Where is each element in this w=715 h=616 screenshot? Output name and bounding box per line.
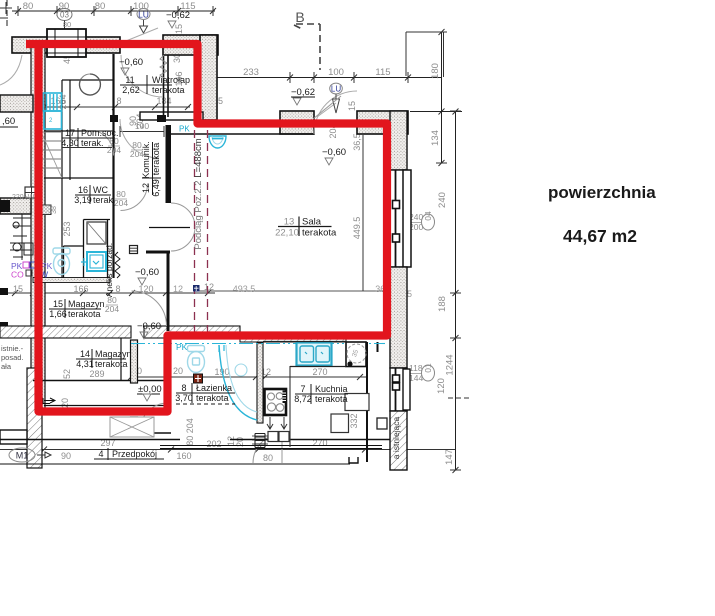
svg-text:20: 20 — [60, 398, 70, 408]
svg-text:14: 14 — [80, 349, 90, 359]
svg-text:80: 80 — [23, 1, 34, 12]
svg-text:a istniejąca: a istniejąca — [391, 416, 401, 459]
svg-text:449.5: 449.5 — [352, 217, 362, 240]
svg-text:B: B — [295, 9, 304, 25]
svg-text:100: 100 — [328, 67, 344, 78]
svg-text:180: 180 — [430, 63, 441, 79]
svg-text:LU: LU — [331, 85, 341, 94]
svg-text:289: 289 — [89, 369, 104, 379]
svg-text:Wiatrołap: Wiatrołap — [152, 75, 190, 85]
svg-text:15: 15 — [174, 24, 184, 34]
svg-text:terakota: terakota — [302, 228, 337, 239]
svg-text:posad.: posad. — [1, 353, 24, 362]
svg-text:Sala: Sala — [302, 217, 322, 228]
svg-text:1,66: 1,66 — [49, 309, 67, 319]
svg-text:8: 8 — [181, 383, 186, 393]
svg-text:−0,60: −0,60 — [119, 57, 143, 68]
svg-text:8: 8 — [115, 284, 120, 294]
svg-text:ała: ała — [1, 362, 12, 371]
svg-text:17: 17 — [65, 128, 75, 138]
svg-text:147: 147 — [444, 449, 455, 465]
svg-text:3,70: 3,70 — [175, 393, 193, 403]
svg-text:2,62: 2,62 — [122, 85, 140, 95]
svg-text:240: 240 — [437, 192, 448, 208]
svg-text:160: 160 — [176, 451, 191, 461]
svg-text:LU: LU — [138, 10, 149, 20]
svg-text:terakota: terakota — [95, 359, 128, 369]
svg-text:15: 15 — [347, 101, 357, 111]
svg-text:terakota: terakota — [68, 309, 101, 319]
svg-text:202: 202 — [206, 439, 221, 449]
svg-text:15: 15 — [53, 299, 63, 309]
svg-text:253: 253 — [62, 221, 72, 236]
svg-text:12: 12 — [226, 436, 236, 446]
svg-text:44,67 m2: 44,67 m2 — [563, 226, 637, 246]
svg-text:204: 204 — [105, 304, 119, 314]
svg-text:±0,00: ±0,00 — [138, 384, 162, 395]
svg-text:22,10: 22,10 — [275, 228, 299, 239]
svg-text:11: 11 — [125, 75, 134, 85]
svg-text:Pom.soc.: Pom.soc. — [81, 128, 119, 138]
svg-text:CO: CO — [11, 270, 24, 280]
svg-text:204: 204 — [114, 198, 128, 208]
svg-text:20: 20 — [173, 366, 183, 376]
svg-text:1244: 1244 — [445, 354, 456, 375]
svg-text:terakota: terakota — [152, 85, 185, 95]
svg-text:7: 7 — [300, 384, 305, 394]
svg-text:−0,62: −0,62 — [291, 87, 315, 98]
svg-text:233: 233 — [243, 67, 259, 78]
svg-text:36,5: 36,5 — [352, 133, 362, 151]
svg-text:12: 12 — [141, 183, 151, 193]
svg-text:4: 4 — [98, 449, 103, 459]
svg-text:166: 166 — [73, 284, 88, 294]
svg-text:PK: PK — [176, 342, 188, 352]
svg-text:Komunik.: Komunik. — [141, 141, 151, 179]
svg-text:80 204: 80 204 — [185, 418, 195, 446]
svg-text:Łazienka: Łazienka — [196, 383, 232, 393]
svg-text:L=488cm: L=488cm — [193, 138, 204, 177]
svg-text:04: 04 — [423, 211, 433, 221]
svg-text:120: 120 — [436, 378, 447, 394]
svg-text:−0,60: −0,60 — [135, 267, 159, 278]
svg-text:01: 01 — [423, 363, 433, 373]
svg-text:terakota: terakota — [315, 394, 348, 404]
svg-text:118: 118 — [409, 363, 423, 373]
svg-text:powierzchnia: powierzchnia — [548, 183, 656, 202]
svg-text:terak.: terak. — [93, 195, 116, 205]
svg-text:terak.: terak. — [81, 138, 104, 148]
svg-text:115: 115 — [375, 67, 390, 78]
svg-text:100: 100 — [135, 121, 149, 131]
svg-text:3,19: 3,19 — [74, 195, 92, 205]
svg-text:−0,60: −0,60 — [322, 147, 346, 158]
svg-text:8: 8 — [116, 96, 121, 106]
svg-text:12: 12 — [204, 282, 214, 292]
svg-text:PK: PK — [179, 125, 190, 134]
svg-text:,60: ,60 — [2, 116, 15, 127]
svg-text:13: 13 — [284, 217, 295, 228]
svg-text:38: 38 — [51, 206, 58, 214]
svg-text:−0,62: −0,62 — [166, 10, 190, 21]
svg-text:M1: M1 — [16, 451, 29, 461]
svg-text:WC: WC — [93, 185, 108, 195]
svg-text:188: 188 — [437, 296, 448, 312]
svg-text:332: 332 — [349, 413, 359, 428]
svg-text:80: 80 — [95, 1, 106, 12]
svg-text:−0,60: −0,60 — [137, 321, 161, 332]
svg-text:90: 90 — [61, 451, 71, 461]
svg-text:134: 134 — [430, 130, 441, 146]
svg-text:264: 264 — [58, 94, 68, 109]
svg-text:Kuchnia: Kuchnia — [315, 384, 348, 394]
svg-text:4,31: 4,31 — [76, 359, 94, 369]
svg-text:52: 52 — [62, 369, 72, 379]
svg-text:15: 15 — [13, 284, 23, 294]
svg-text:4,30: 4,30 — [61, 138, 79, 148]
svg-text:Magazyn: Magazyn — [95, 349, 132, 359]
svg-text:220+W: 220+W — [12, 194, 35, 201]
svg-text:270: 270 — [312, 367, 327, 377]
svg-text:8,72: 8,72 — [294, 394, 312, 404]
svg-text:03: 03 — [60, 11, 69, 20]
svg-text:493.5: 493.5 — [233, 284, 256, 294]
svg-text:Przedpokój: Przedpokój — [112, 449, 157, 459]
svg-text:Magazyn: Magazyn — [68, 299, 105, 309]
svg-text:istnie.-: istnie.- — [1, 344, 24, 353]
svg-text:terakota: terakota — [196, 393, 229, 403]
svg-text:Aneks porząd.: Aneks porząd. — [104, 243, 114, 297]
svg-text:16: 16 — [78, 185, 88, 195]
svg-text:12: 12 — [173, 284, 183, 294]
svg-text:Podciąg Poz.2.2: Podciąg Poz.2.2 — [193, 180, 204, 249]
svg-text:80: 80 — [263, 453, 273, 463]
